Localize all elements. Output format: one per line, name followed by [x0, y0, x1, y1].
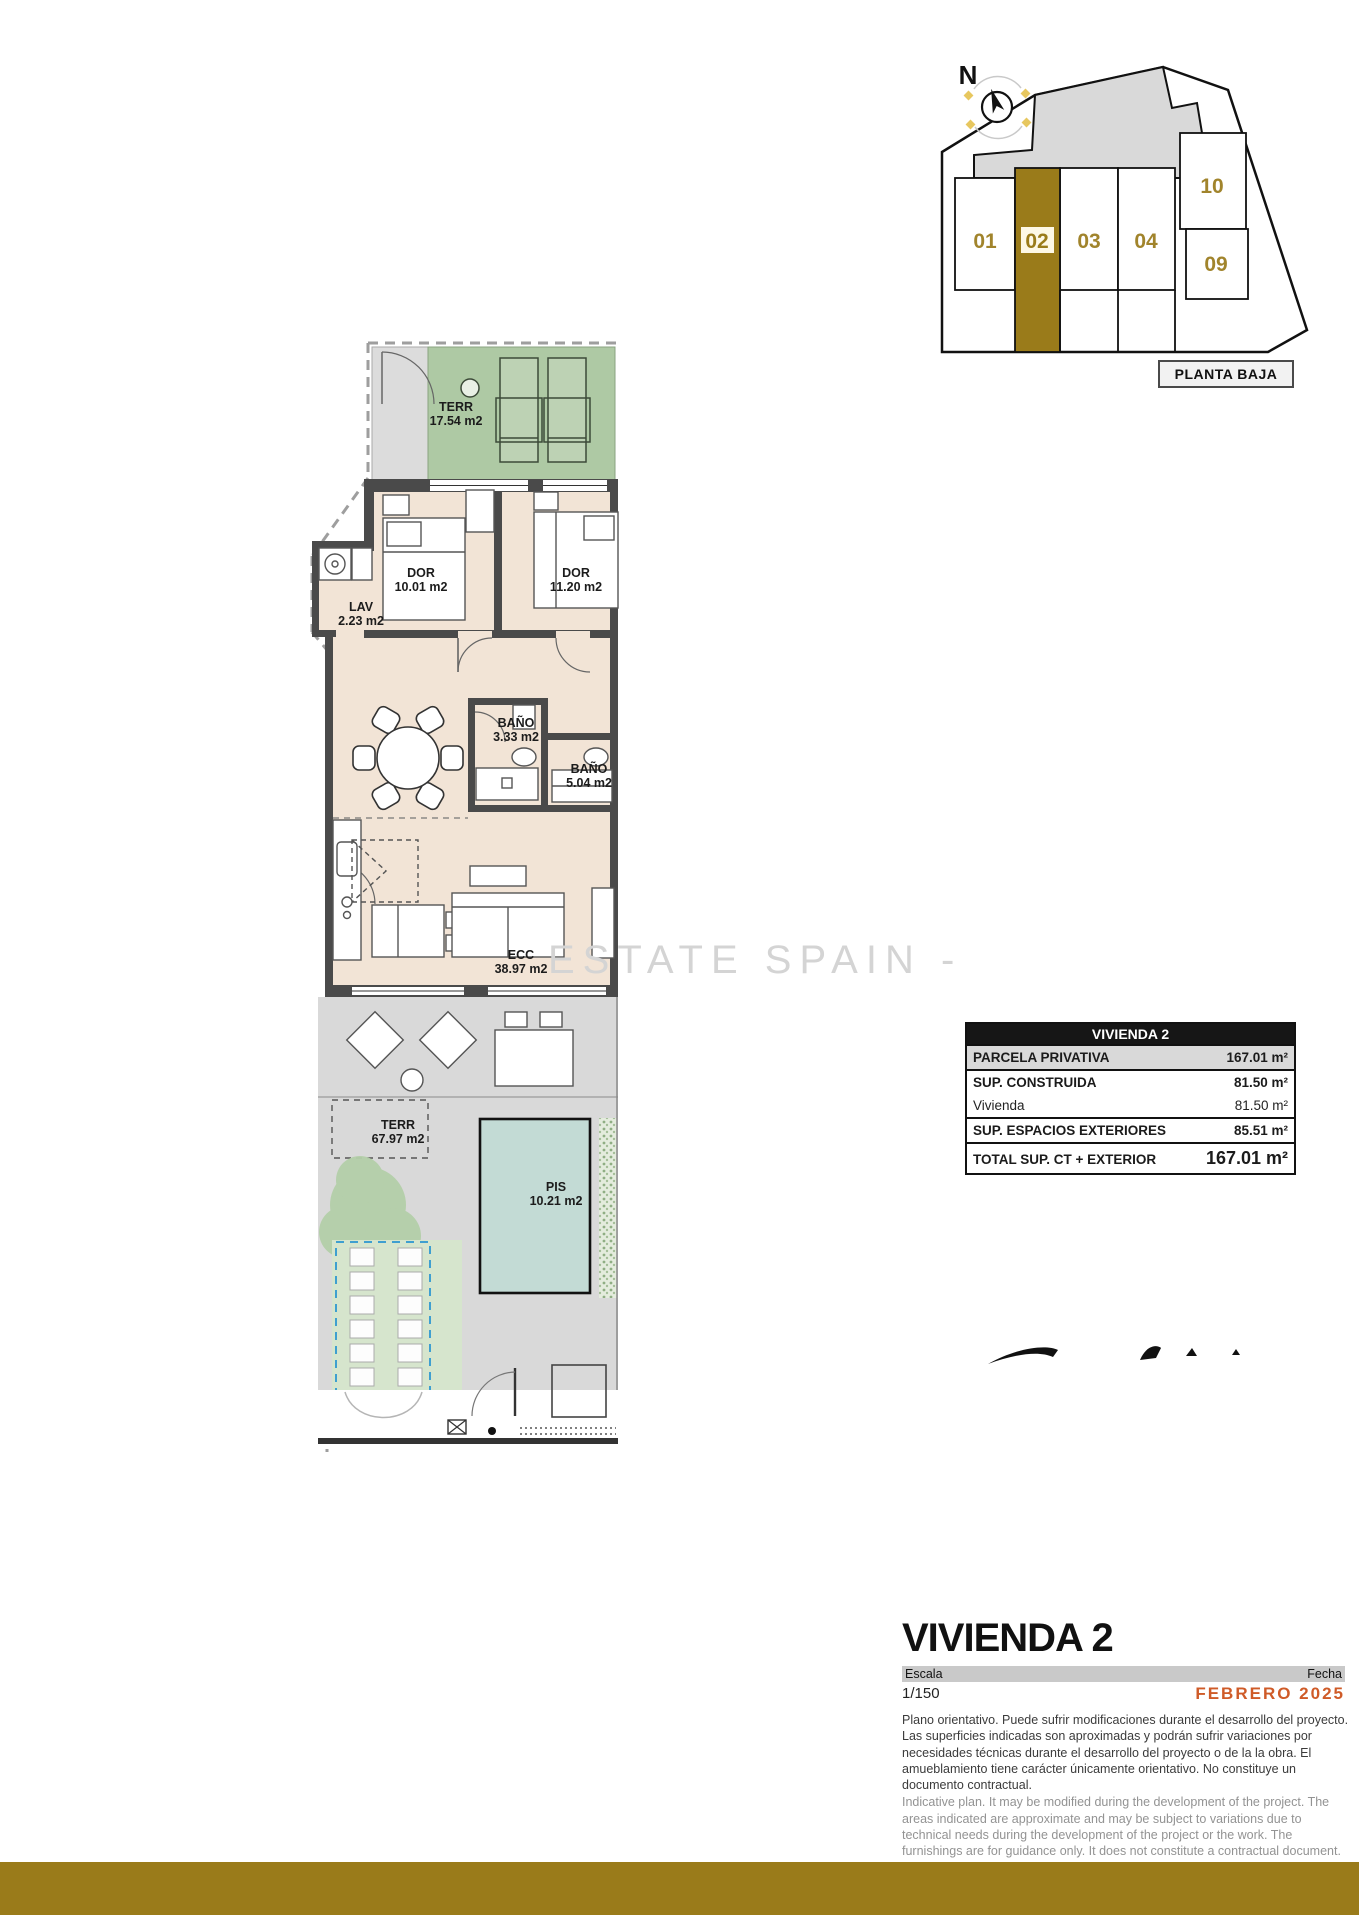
- planter-strip: [599, 1118, 617, 1298]
- sheet-title: VIVIENDA 2: [902, 1616, 1113, 1661]
- table-row: Vivienda 81.50 m²: [967, 1094, 1294, 1117]
- unit-04-label: 04: [1134, 230, 1158, 253]
- room-label-ecc: ECC38.97 m2: [495, 948, 548, 976]
- date-value: FEBRERO 2025: [1150, 1684, 1345, 1704]
- rear-paving: [318, 1390, 618, 1438]
- disclaimer-spanish: Plano orientativo. Puede sufrir modifica…: [902, 1712, 1352, 1793]
- unit-02-label: 02: [1025, 230, 1048, 253]
- compass-north-label: N: [959, 60, 978, 90]
- terrace-top: [372, 347, 615, 483]
- table-row: PARCELA PRIVATIVA 167.01 m²: [967, 1044, 1294, 1069]
- unit-03-label: 03: [1077, 230, 1100, 253]
- table-row: SUP. ESPACIOS EXTERIORES 85.51 m²: [967, 1117, 1294, 1142]
- clipped-script-marks: [980, 1340, 1260, 1374]
- room-label-bano-1: BAÑO3.33 m2: [493, 716, 539, 744]
- table-row: TOTAL SUP. CT + EXTERIOR 167.01 m²: [967, 1142, 1294, 1173]
- unit-10-label: 10: [1200, 175, 1223, 198]
- unit-04-cell: [1118, 168, 1175, 290]
- unit-09-label: 09: [1204, 253, 1227, 276]
- summary-table-header: VIVIENDA 2: [967, 1024, 1294, 1044]
- unit-03-cell: [1060, 168, 1118, 290]
- plan-sheet: 01 02 03 04 09 10 N PLANTA BAJA: [0, 0, 1359, 1920]
- room-label-terraza-jardin: TERR67.97 m2: [372, 1118, 425, 1146]
- disclaimer: Plano orientativo. Puede sufrir modifica…: [902, 1712, 1352, 1859]
- compass-icon: N: [959, 60, 1032, 139]
- unit-02-cell-highlighted: [1015, 168, 1060, 352]
- scale-label: Escala: [905, 1666, 943, 1682]
- building-mass: [974, 67, 1204, 178]
- watermark-text: ESTATE SPAIN -: [548, 938, 962, 983]
- disclaimer-english: Indicative plan. It may be modified duri…: [902, 1794, 1352, 1859]
- scale-value: 1/150: [902, 1685, 940, 1702]
- room-label-piscina: PIS10.21 m2: [530, 1180, 583, 1208]
- footer-gold-bar: [0, 1862, 1359, 1915]
- floor-plan-drawing: [250, 338, 630, 1460]
- meta-bar: Escala Fecha: [902, 1666, 1345, 1682]
- room-label-bano-2: BAÑO5.04 m2: [566, 762, 612, 790]
- room-label-terraza-superior: TERR17.54 m2: [430, 400, 483, 428]
- date-label: Fecha: [1307, 1666, 1342, 1682]
- rear-boundary-wall: [318, 1438, 618, 1444]
- floor-caption: PLANTA BAJA: [1158, 360, 1294, 388]
- room-label-dormitorio-1: DOR10.01 m2: [395, 566, 448, 594]
- room-label-dormitorio-2: DOR11.20 m2: [550, 566, 602, 594]
- table-row: SUP. CONSTRUIDA 81.50 m²: [967, 1069, 1294, 1094]
- washer-icon: [319, 548, 372, 580]
- site-key-plan: 01 02 03 04 09 10 N: [930, 55, 1350, 365]
- room-label-lavadero: LAV2.23 m2: [338, 600, 384, 628]
- unit-01-label: 01: [973, 230, 997, 253]
- summary-table: VIVIENDA 2 PARCELA PRIVATIVA 167.01 m² S…: [965, 1022, 1296, 1175]
